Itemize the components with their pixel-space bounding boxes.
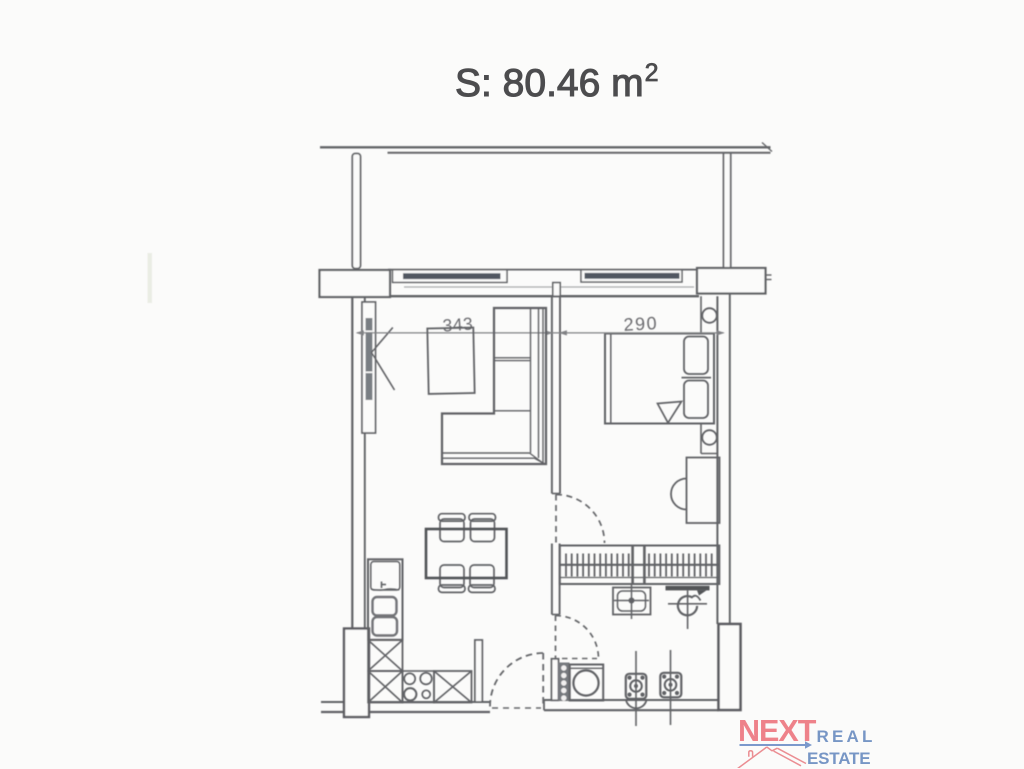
svg-text:343: 343	[442, 313, 474, 335]
svg-text:290: 290	[623, 313, 659, 335]
